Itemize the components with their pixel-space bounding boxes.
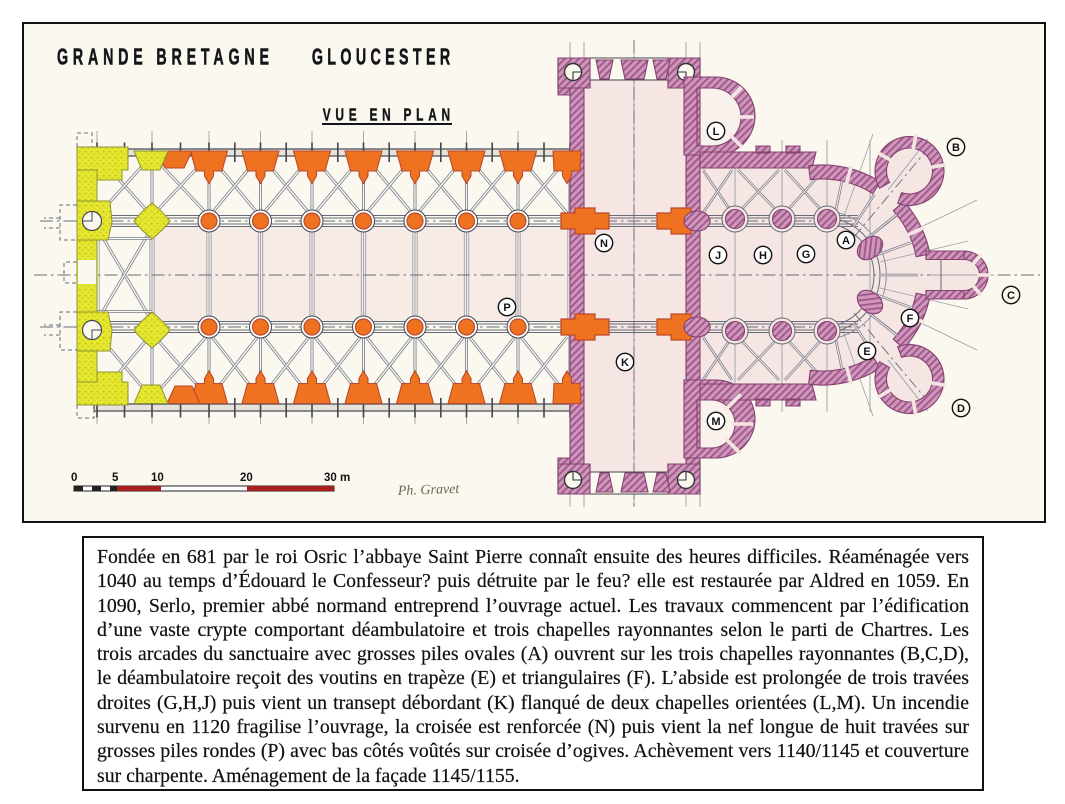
svg-text:Ph. Gravet: Ph. Gravet <box>397 482 461 499</box>
svg-text:G: G <box>802 249 811 261</box>
svg-text:F: F <box>907 313 914 325</box>
svg-text:10: 10 <box>151 472 164 484</box>
svg-text:M: M <box>711 416 720 428</box>
svg-text:B: B <box>952 142 960 154</box>
svg-text:J: J <box>715 250 721 262</box>
svg-text:A: A <box>842 235 850 247</box>
svg-text:L: L <box>713 126 720 138</box>
svg-text:D: D <box>957 403 965 415</box>
svg-text:N: N <box>600 238 608 250</box>
svg-text:5: 5 <box>112 472 119 484</box>
svg-text:K: K <box>621 357 629 369</box>
svg-text:30 m: 30 m <box>324 472 350 484</box>
svg-text:H: H <box>759 250 767 262</box>
svg-text:0: 0 <box>71 472 77 484</box>
svg-text:C: C <box>1007 290 1015 302</box>
svg-text:20: 20 <box>240 472 253 484</box>
svg-text:VUE EN PLAN: VUE EN PLAN <box>323 105 450 125</box>
svg-text:E: E <box>863 346 870 358</box>
svg-text:P: P <box>503 302 510 314</box>
